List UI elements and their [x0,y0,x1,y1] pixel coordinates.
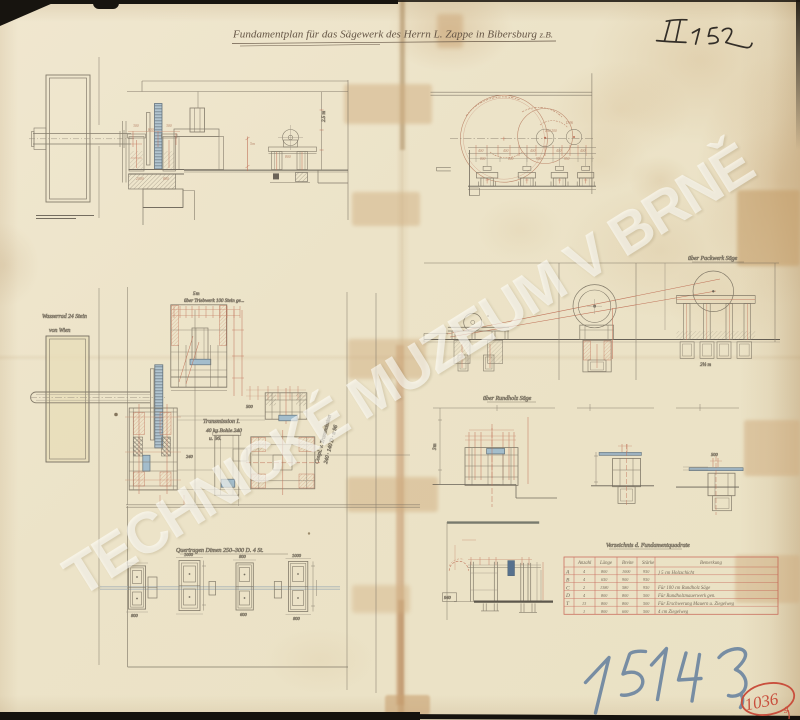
svg-text:1036: 1036 [743,689,780,714]
svg-text:Fundamentplan für das Sägewerk: Fundamentplan für das Sägewerk des Herrn… [232,30,553,41]
